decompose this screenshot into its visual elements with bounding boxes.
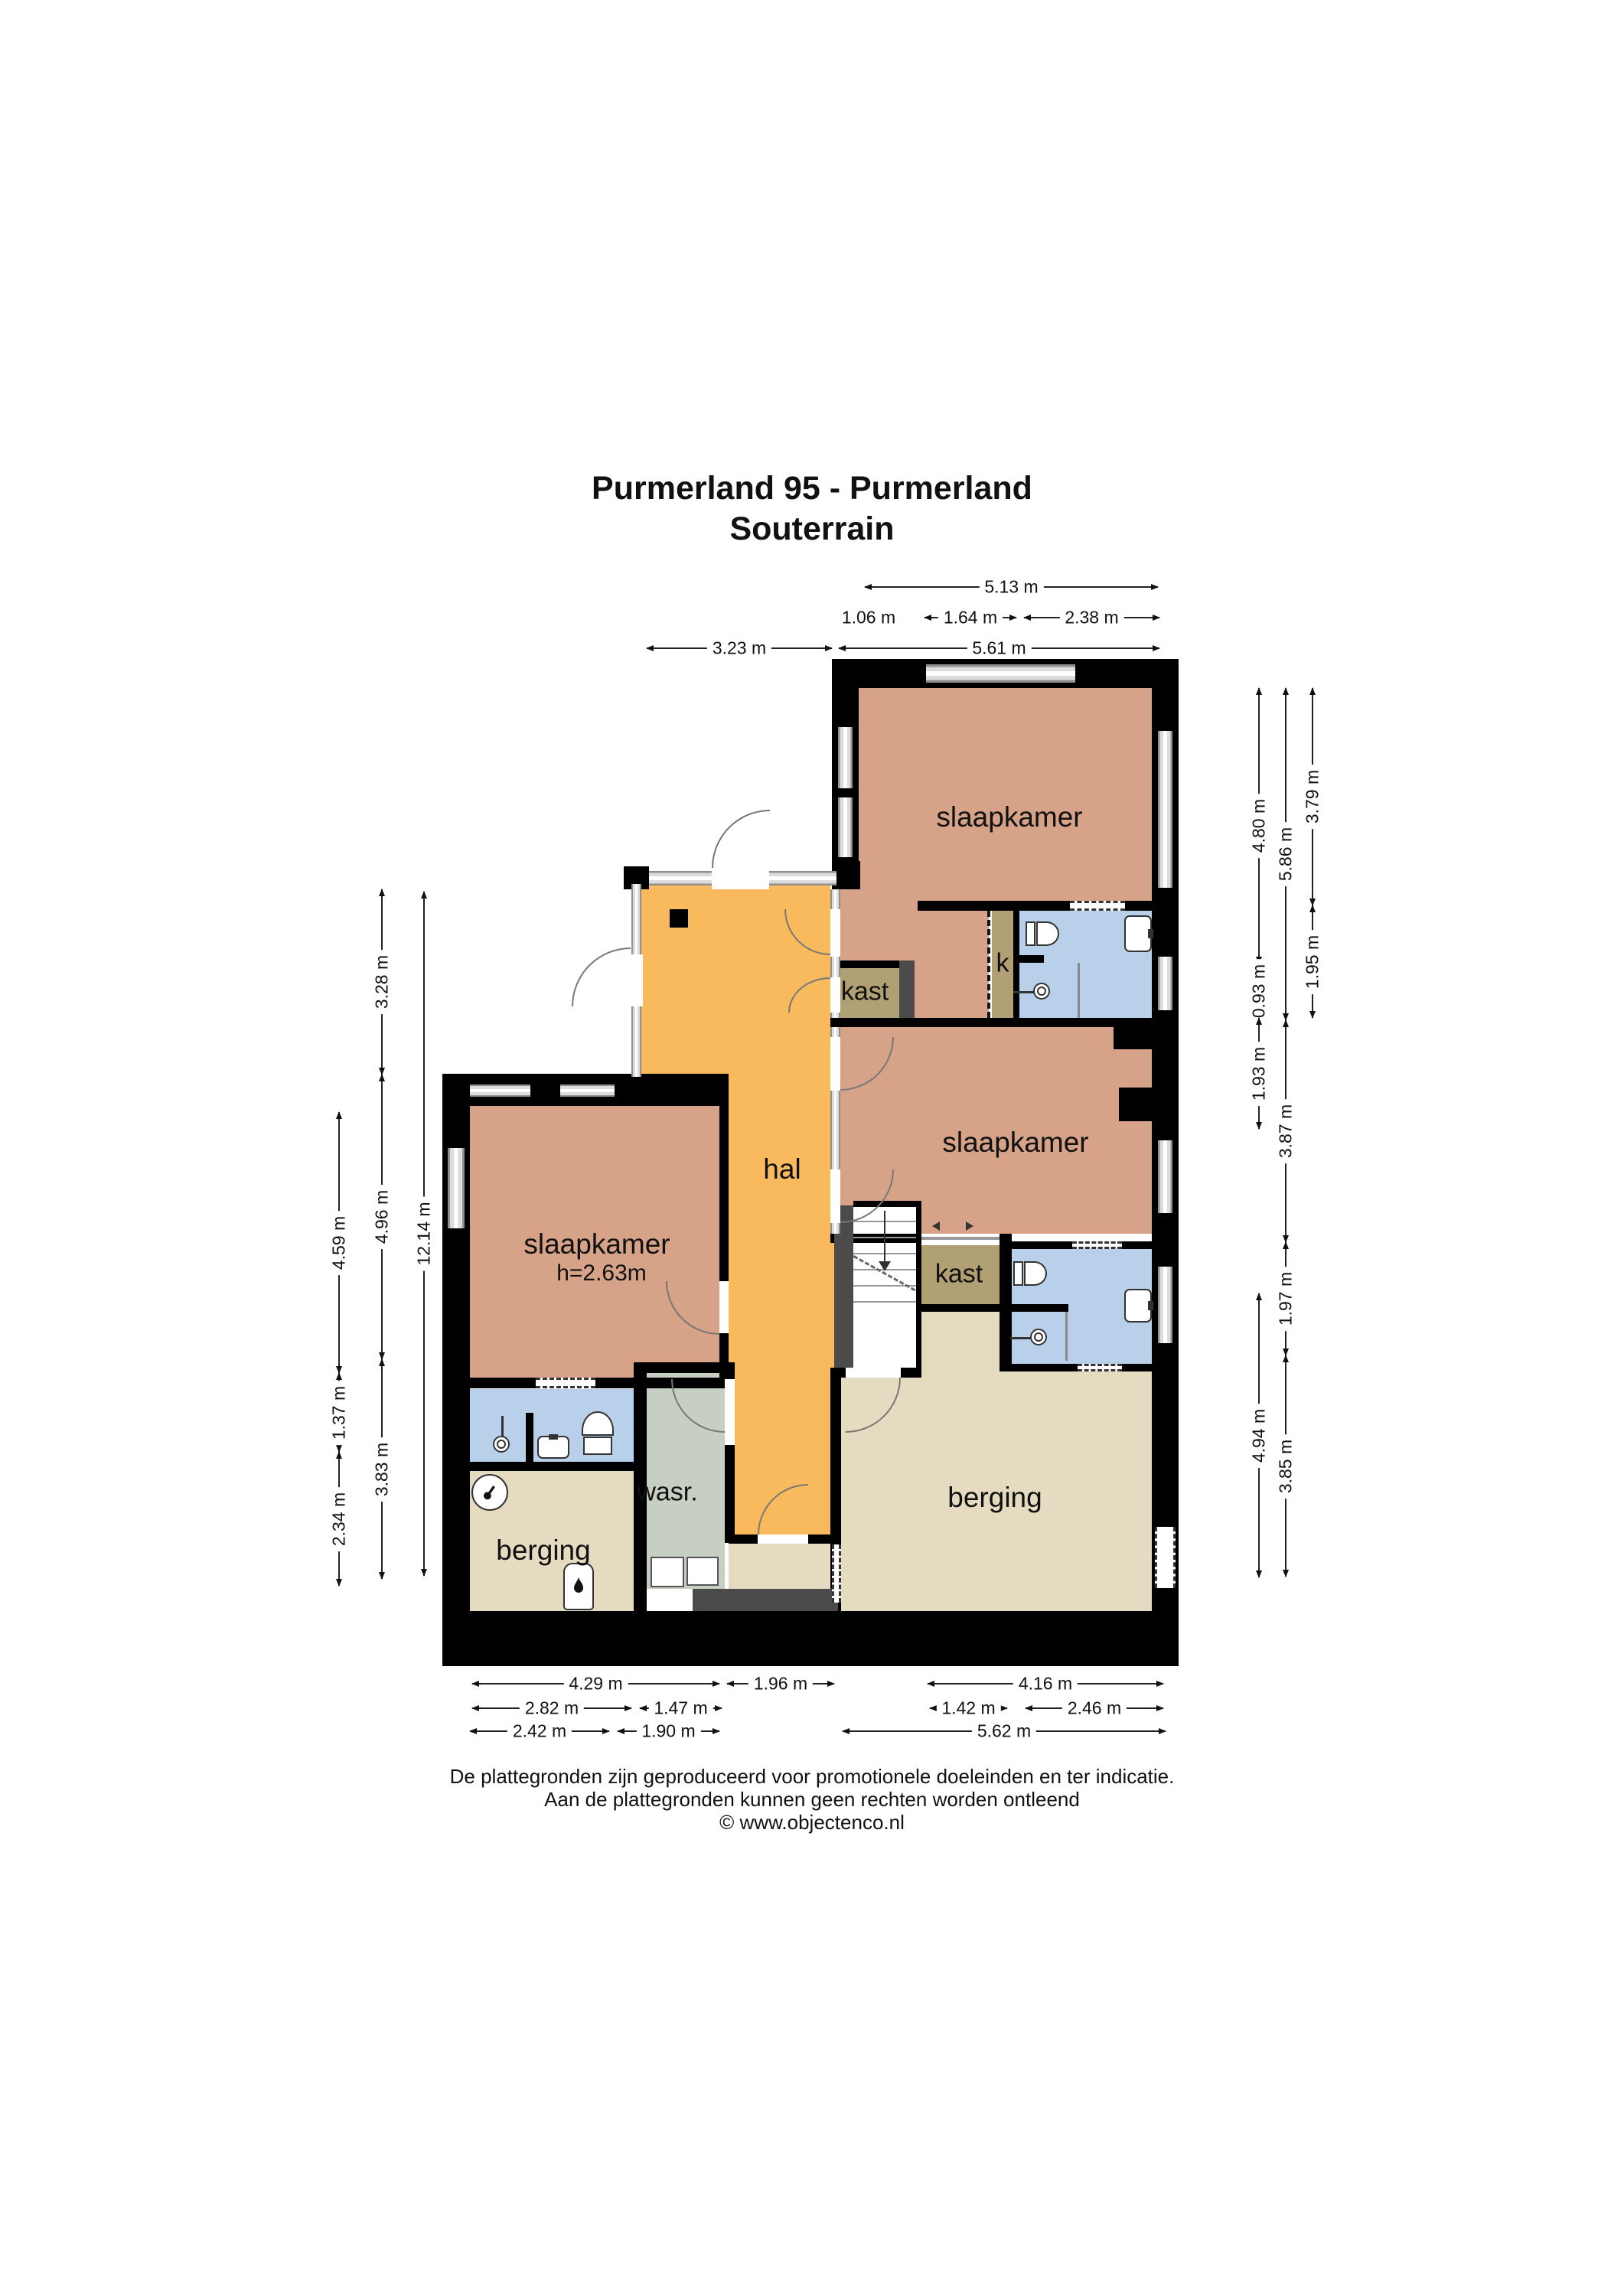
dimension: 1.47 m [640,1707,722,1709]
dim-arrow-up-icon [336,1372,342,1380]
dimension: 5.61 m [839,647,1159,649]
dim-arrow-up-icon [336,1451,342,1459]
dim-arrow-right-icon [713,1681,720,1687]
dimension-label: 3.83 m [372,1437,393,1501]
room-label-slaapkamer-3: slaapkamer [523,1228,670,1261]
dimension-label: 5.13 m [979,577,1043,598]
room-label-slaapkamer-1: slaapkamer [936,801,1082,833]
dim-arrow-up-icon [1283,1355,1289,1362]
window [448,1148,465,1228]
dimension: 1.90 m [618,1730,719,1732]
dimension-label: 1.93 m [1249,1041,1270,1105]
dim-arrow-up-icon [1256,687,1262,695]
room-label-hal-lower: hal [763,1153,801,1186]
wall [916,1205,921,1371]
window [1158,731,1172,888]
dim-arrow-down-icon [1256,1570,1262,1578]
dimension: 3.79 m [1312,688,1313,905]
door-opening [758,1534,808,1544]
stairs-icon [853,1301,916,1303]
dimension: 1.42 m [930,1707,1007,1709]
room-label-berging-links: berging [496,1534,590,1567]
interior-window [1072,1241,1122,1249]
dimension: 4.80 m [1258,688,1260,964]
wall [899,960,915,1018]
column [670,909,688,928]
dim-arrow-down-icon [421,1569,427,1577]
dimension-label: 1.64 m [938,608,1003,628]
dimension: 2.82 m [472,1707,631,1709]
toilet-icon [1026,921,1059,946]
dim-arrow-down-icon [336,1579,342,1587]
room-label-berging-rechts: berging [947,1482,1042,1514]
room-label-wasruimte: wasr. [637,1478,697,1508]
washer-icon [686,1557,719,1586]
dimension-label: 12.14 m [414,1196,435,1270]
dimension-label: 1.96 m [748,1674,813,1694]
dimension-label: 4.80 m [1249,794,1270,858]
sink-icon [1124,1289,1152,1322]
dimension: 3.83 m [381,1359,383,1579]
window [769,871,836,885]
room-sublabel-slaapkamer-3: h=2.63m [556,1261,647,1287]
dimension: 4.16 m [928,1683,1163,1684]
dimension-label: 1.06 m [836,608,901,628]
crawl-space [693,1589,838,1611]
wall [442,1611,1179,1666]
stairs-direction-arrow [884,1211,885,1264]
sliding-door [921,1237,1000,1240]
door-opening [725,1379,735,1445]
dimension-label: 3.28 m [372,950,393,1014]
wall [1114,1018,1152,1049]
wall [1012,1304,1068,1312]
door-opening [830,977,840,1013]
window [926,664,1075,683]
dimension-label: 2.42 m [507,1721,572,1742]
dimension-label: 1.37 m [329,1380,350,1444]
wall [1013,955,1044,963]
dim-arrow-left-icon [471,1705,479,1711]
room-vestibule [729,1544,836,1589]
dim-arrow-left-icon [471,1681,479,1687]
slide-arrow-right-icon [966,1221,978,1231]
dimension-label: 3.79 m [1303,765,1323,829]
wall [719,1106,729,1380]
sink-icon [537,1436,569,1459]
dimension-label: 4.16 m [1013,1674,1078,1694]
dim-arrow-left-icon [726,1681,734,1687]
dimension: 1.97 m [1285,1242,1286,1355]
slide-arrow-left-icon [928,1221,940,1231]
dim-arrow-right-icon [713,1728,720,1734]
dimension-label: 0.93 m [1249,958,1270,1022]
dim-arrow-down-icon [379,1572,385,1580]
dim-arrow-right-icon [1000,1705,1008,1711]
floor-plan: slaapkamerkastkslaapkamerkasthalslaapkam… [0,0,1624,2296]
dimension-label: 1.97 m [1276,1267,1296,1331]
door-opening [630,954,643,1006]
room-label-kast-1: kast [841,977,889,1007]
door-opening [719,1281,729,1333]
dim-arrow-up-icon [379,1074,385,1081]
dimension: 2.46 m [1026,1707,1163,1709]
room-label-k-closet: k [996,949,1009,979]
dimension-label: 1.47 m [648,1698,713,1719]
interior-window [536,1378,595,1388]
dim-arrow-left-icon [469,1728,477,1734]
disclaimer-line3: © www.objectenco.nl [0,1811,1624,1834]
dimension: 1.95 m [1312,905,1313,1018]
dim-arrow-right-icon [1156,1705,1164,1711]
dimension-label: 2.82 m [520,1698,584,1719]
dim-arrow-down-icon [1309,1011,1316,1019]
dim-arrow-up-icon [1256,1293,1262,1300]
dimension: 5.13 m [865,586,1158,588]
door-arc [712,810,770,868]
dimension: 2.38 m [1024,617,1159,618]
dimension-label: 4.59 m [329,1210,350,1274]
window [1158,1267,1172,1343]
dim-arrow-right-icon [825,645,833,651]
dimension-label: 1.90 m [636,1721,700,1742]
dim-arrow-up-icon [1256,1017,1262,1025]
boiler-icon [563,1563,594,1610]
dimension: 4.96 m [381,1075,383,1359]
wall [921,1304,1000,1312]
wall [1013,911,1019,1018]
dim-arrow-left-icon [617,1728,624,1734]
dim-arrow-up-icon [1283,1241,1289,1249]
wall [526,1413,533,1462]
dimension: 12.14 m [423,892,425,1576]
dimension-label: 4.29 m [563,1674,628,1694]
dim-arrow-left-icon [646,645,654,651]
disclaimer-line2: Aan de plattegronden kunnen geen rechten… [0,1788,1624,1811]
dim-arrow-right-icon [624,1705,632,1711]
shower-icon [1030,1329,1047,1345]
dim-arrow-left-icon [927,1681,934,1687]
dimension: 1.37 m [338,1373,340,1452]
washer-icon [651,1557,684,1587]
dim-arrow-up-icon [1283,1019,1289,1027]
door-opening [830,1037,840,1091]
room-berging-arm [921,1312,1000,1371]
folding-door [987,911,990,1018]
dim-arrow-right-icon [1156,1681,1164,1687]
dim-arrow-up-icon [379,1358,385,1366]
door-opening [846,1368,901,1378]
dimension-label: 3.85 m [1276,1433,1296,1498]
dim-arrow-right-icon [1009,615,1017,621]
dimension: 5.62 m [843,1730,1166,1732]
dim-arrow-right-icon [715,1705,722,1711]
dimension: 1.93 m [1258,1018,1260,1129]
shower-icon [493,1436,510,1453]
dim-arrow-right-icon [1153,615,1160,621]
dim-arrow-left-icon [842,1728,850,1734]
disclaimer: De plattegronden zijn geproduceerd voor … [0,1765,1624,1834]
room-label-slaapkamer-2: slaapkamer [942,1127,1088,1159]
chimney-block [1119,1088,1152,1121]
dimension-label: 1.42 m [936,1698,1000,1719]
shower-glass [1078,963,1080,1018]
dimension-label: 3.23 m [707,638,771,659]
dimension-label: 2.46 m [1062,1698,1127,1719]
dimension: 0.93 m [1258,964,1260,1018]
dimension: 4.94 m [1258,1293,1260,1577]
dimension-label: 3.87 m [1276,1099,1296,1163]
dim-arrow-up-icon [421,891,427,899]
flame-icon [571,1577,586,1596]
dim-arrow-left-icon [924,615,931,621]
sliding-door [832,1544,841,1603]
wall [1000,1364,1152,1371]
wall [836,861,860,889]
wall [442,1462,647,1471]
sink-icon [1124,915,1152,952]
dim-arrow-up-icon [1309,687,1316,695]
wall [832,688,859,889]
window [838,727,853,788]
window [560,1084,615,1097]
dim-arrow-left-icon [838,645,846,651]
window [649,871,712,885]
dim-arrow-right-icon [602,1728,610,1734]
dimension: 3.87 m [1285,1020,1286,1242]
toilet-icon [1013,1261,1047,1286]
dim-arrow-down-icon [1256,1122,1262,1130]
dimension: 1.64 m [925,617,1016,618]
dim-arrow-up-icon [379,889,385,896]
window [470,1084,530,1097]
interior-window [1078,1364,1122,1371]
shower-glass [1065,1312,1068,1361]
dimension-label: 5.62 m [972,1721,1036,1742]
dim-arrow-left-icon [1025,1705,1032,1711]
dimension: 3.23 m [647,647,832,649]
floorplan-page: Purmerland 95 - Purmerland Souterrain [0,0,1624,2296]
dimension: 5.86 m [1285,688,1286,1020]
dim-arrow-right-icon [1159,1728,1166,1734]
dimension: 3.85 m [1285,1355,1286,1577]
dim-arrow-up-icon [336,1111,342,1119]
dimension-label: 2.38 m [1059,608,1123,628]
dim-arrow-right-icon [827,1681,835,1687]
window [1158,957,1172,1010]
dimension: 4.29 m [472,1683,719,1684]
room-slaapkamer-1 [859,688,1152,901]
dimension: 2.34 m [338,1452,340,1586]
room-label-kast-2: kast [935,1260,983,1290]
wall [830,1018,1152,1027]
dimension-label: 2.34 m [329,1486,350,1551]
dimension-label: 5.86 m [1276,822,1296,886]
dim-arrow-right-icon [1153,645,1160,651]
dimension-label: 4.94 m [1249,1403,1270,1467]
dimension-label: 4.96 m [372,1185,393,1249]
dim-arrow-down-icon [1283,1570,1289,1577]
window [1158,1140,1172,1213]
dim-arrow-up-icon [1309,905,1316,912]
door-opening [830,909,840,957]
door-opening [830,1169,840,1223]
wall [833,960,907,968]
shower-icon [1033,983,1050,1000]
dimension: 1.96 m [727,1683,834,1684]
interior-window [1155,1527,1176,1588]
door-arc [572,947,631,1006]
dim-arrow-left-icon [639,1705,647,1711]
interior-window [1070,901,1125,911]
window [838,797,853,857]
dimension-label: 1.95 m [1303,929,1323,993]
wall [1000,1234,1012,1371]
thermometer-icon [471,1474,508,1511]
dimension: 2.42 m [470,1730,609,1732]
dimension: 4.59 m [338,1112,340,1373]
dim-arrow-left-icon [864,584,872,590]
dimension-label: 5.61 m [967,638,1031,659]
disclaimer-line1: De plattegronden zijn geproduceerd voor … [0,1765,1624,1788]
toilet-icon [582,1411,614,1456]
dim-arrow-right-icon [1151,584,1159,590]
dimension: 3.28 m [381,889,383,1075]
dim-arrow-left-icon [1023,615,1031,621]
dimension: 1.06 m [837,617,900,618]
dim-arrow-up-icon [1283,687,1289,695]
door-opening [712,866,769,889]
